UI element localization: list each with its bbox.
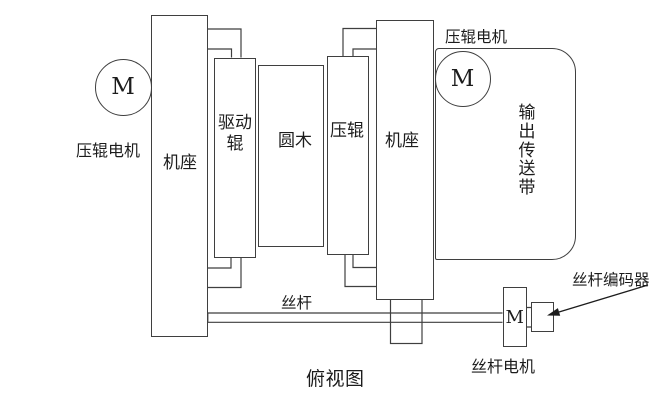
encoder-arrow-line xyxy=(559,285,648,312)
encoder-arrow-head xyxy=(547,308,560,316)
encoder-arrow-layer xyxy=(0,0,665,401)
top-view-machine-diagram: M M M 压辊电机 机座 驱动辊 圆木 压辊 机座 压辊电机 输出传送带 丝杆… xyxy=(0,0,665,401)
